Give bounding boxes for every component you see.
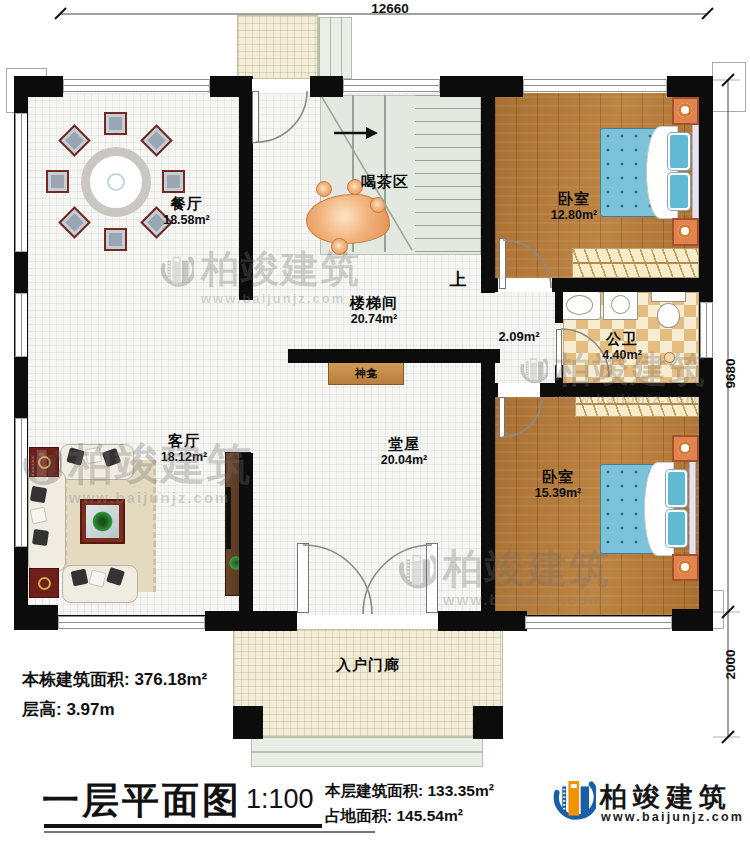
throw-pillow	[32, 529, 49, 546]
note-floor-area: 本层建筑面积: 133.35m²	[325, 781, 494, 802]
wall-segment	[555, 292, 563, 323]
window	[700, 302, 713, 358]
room-name: 客厅	[138, 433, 230, 450]
entry-porch	[233, 629, 503, 737]
stairs-up-label: 上	[444, 270, 472, 289]
title-underline	[44, 824, 322, 828]
sink	[566, 295, 593, 315]
dining-table-center	[107, 173, 125, 191]
nightstand	[672, 554, 699, 581]
room-area: 12.80m²	[530, 208, 618, 222]
headboard	[692, 124, 699, 221]
door-leaf	[556, 329, 562, 378]
window	[525, 616, 672, 629]
room-label-bedroom2: 卧室 15.39m²	[512, 469, 604, 500]
throw-pillow	[30, 507, 48, 525]
scale-label: 1:100	[246, 784, 314, 815]
title-underline-thin	[44, 831, 375, 833]
door-opening	[498, 278, 552, 292]
shrine: 神龛	[328, 362, 404, 385]
door-opening	[297, 615, 438, 629]
room-label-hall: 堂屋 20.04m²	[358, 436, 450, 467]
room-name: 堂屋	[358, 436, 450, 453]
bed-pillow	[668, 173, 690, 210]
wall-segment	[239, 93, 253, 300]
plant	[92, 511, 113, 532]
bed-pillow	[666, 470, 687, 507]
door-leaf	[297, 543, 309, 613]
window	[343, 79, 440, 93]
wall-segment	[481, 93, 495, 293]
wall-column	[310, 76, 343, 97]
door-leaf	[252, 91, 259, 143]
page-title: 一层平面图	[42, 776, 242, 826]
dimension-label-right: 9680	[723, 351, 738, 397]
logo-icon	[550, 777, 596, 825]
note-footprint-area: 占地面积: 145.54m²	[325, 806, 463, 827]
washing-machine-drum	[611, 295, 630, 314]
exterior-ledge	[712, 62, 746, 112]
toilet	[657, 303, 680, 328]
room-area: 20.04m²	[358, 453, 450, 467]
porch-step	[251, 737, 483, 752]
room-area: 18.58m²	[144, 213, 229, 227]
door-opening	[498, 383, 540, 397]
dining-chair	[162, 170, 185, 193]
rear-porch	[237, 15, 318, 79]
wall-segment	[288, 349, 500, 363]
door-leaf	[499, 397, 505, 438]
porch-step	[251, 752, 483, 767]
throw-pillow	[30, 486, 47, 503]
room-area: 15.39m²	[512, 486, 604, 500]
window	[15, 418, 27, 547]
corridor-area-label: 2.09m²	[486, 330, 552, 345]
throw-pillow	[85, 447, 102, 464]
note-building-total-area: 本栋建筑面积: 376.18m²	[22, 668, 207, 691]
side-table	[29, 568, 59, 598]
door-leaf	[426, 543, 438, 613]
room-label-dining: 餐厅 18.58m²	[144, 196, 229, 227]
wall-column	[667, 76, 713, 97]
room-area: 4.40m²	[594, 348, 650, 362]
wall-segment	[239, 453, 253, 615]
room-area: 18.12m²	[138, 450, 230, 464]
note-floor-height: 层高: 3.97m	[22, 698, 115, 721]
room-label-bathroom: 公卫 4.40m²	[594, 331, 650, 362]
door-opening	[252, 79, 310, 93]
tea-stool	[316, 181, 332, 197]
room-label-entry-porch: 入户门廊	[313, 657, 423, 674]
wall-column	[672, 609, 713, 631]
room-name: 公卫	[594, 331, 650, 348]
bed-pillow	[668, 133, 690, 170]
floor-plan: 神龛	[0, 0, 750, 843]
wall-column	[14, 76, 63, 97]
room-label-bedroom1: 卧室 12.80m²	[530, 191, 618, 222]
porch-column	[473, 706, 503, 739]
nightstand	[672, 218, 699, 246]
porch-column	[233, 706, 263, 739]
room-label-stairwell: 楼梯间 20.74m²	[330, 295, 418, 326]
nightstand	[672, 435, 699, 462]
window	[15, 113, 27, 252]
wall-column	[14, 605, 58, 630]
floor-drain	[664, 352, 675, 363]
window	[15, 293, 27, 357]
logo-url: www.baijunjz.com	[601, 810, 744, 824]
tv	[226, 487, 231, 549]
throw-pillow	[71, 569, 89, 587]
stair-treads	[415, 95, 481, 252]
toilet-tank	[651, 291, 686, 302]
rear-steps	[318, 17, 352, 79]
room-label-living: 客厅 18.12m²	[138, 433, 230, 464]
dimension-label-porch: 2000	[723, 642, 738, 688]
shrine-label: 神龛	[355, 366, 377, 381]
room-name: 卧室	[512, 469, 604, 486]
dining-chair	[104, 228, 127, 251]
window	[58, 616, 205, 629]
side-table	[29, 447, 59, 477]
room-label-tea-area: 喝茶区	[350, 174, 420, 191]
dining-chair	[104, 112, 127, 135]
room-name: 喝茶区	[350, 174, 420, 191]
nightstand	[672, 97, 699, 125]
room-area: 20.74m²	[330, 312, 418, 326]
dining-chair	[46, 170, 69, 193]
wardrobe	[572, 248, 699, 278]
room-name: 卧室	[530, 191, 618, 208]
bed-pillow	[666, 510, 687, 547]
window	[63, 79, 210, 93]
headboard	[689, 460, 696, 558]
door-leaf	[499, 238, 506, 289]
tea-stool	[331, 238, 348, 255]
room-name: 餐厅	[144, 196, 229, 213]
dimension-label-top: 12660	[352, 1, 428, 16]
tea-stool	[370, 197, 386, 213]
room-name: 楼梯间	[330, 295, 418, 312]
window	[523, 79, 667, 93]
